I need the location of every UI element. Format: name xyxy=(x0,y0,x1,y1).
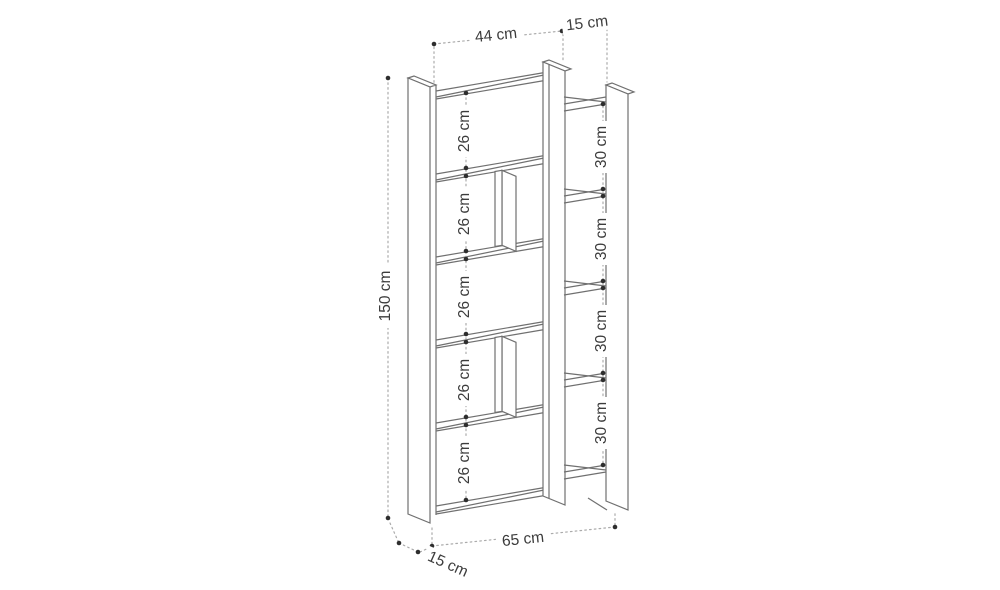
left-section-label-3: 26 cm xyxy=(456,276,473,318)
foot-edge xyxy=(588,498,607,510)
dimension-top-depth: 15 cm xyxy=(561,11,613,82)
dimension-bottom-depth: 15 cm xyxy=(390,523,474,582)
left-section-label-1: 26 cm xyxy=(456,110,473,152)
main-shelves xyxy=(436,73,544,514)
divider-upper xyxy=(495,170,516,251)
bottom-width-label: 65 cm xyxy=(501,529,545,550)
bottom-depth-label: 15 cm xyxy=(425,548,470,581)
diagram-canvas: 150 cm 44 cm 15 cm 65 cm xyxy=(0,0,1000,590)
right-section-label-2: 30 cm xyxy=(593,218,610,260)
top-width-label: 44 cm xyxy=(474,25,518,46)
right-section-label-4: 30 cm xyxy=(593,402,610,444)
left-section-label-2: 26 cm xyxy=(456,193,473,235)
right-section-label-3: 30 cm xyxy=(593,310,610,352)
divider-lower xyxy=(495,336,516,417)
main-unit xyxy=(408,60,571,523)
dimension-height: 150 cm xyxy=(376,76,394,521)
dimension-left-shelf-spacing: 26 cm 26 cm 26 cm 26 cm 26 cm xyxy=(456,91,473,503)
bookshelf-dimension-diagram: 150 cm 44 cm 15 cm 65 cm xyxy=(0,0,1000,590)
left-side-panel xyxy=(408,76,436,523)
left-section-label-5: 26 cm xyxy=(456,442,473,484)
center-panel xyxy=(543,60,571,505)
top-depth-label: 15 cm xyxy=(565,13,609,35)
dimension-bottom-width: 65 cm xyxy=(430,512,618,551)
right-section-label-1: 30 cm xyxy=(593,126,610,168)
height-label: 150 cm xyxy=(377,271,394,322)
right-side-panel xyxy=(606,83,634,510)
left-section-label-4: 26 cm xyxy=(456,359,473,401)
